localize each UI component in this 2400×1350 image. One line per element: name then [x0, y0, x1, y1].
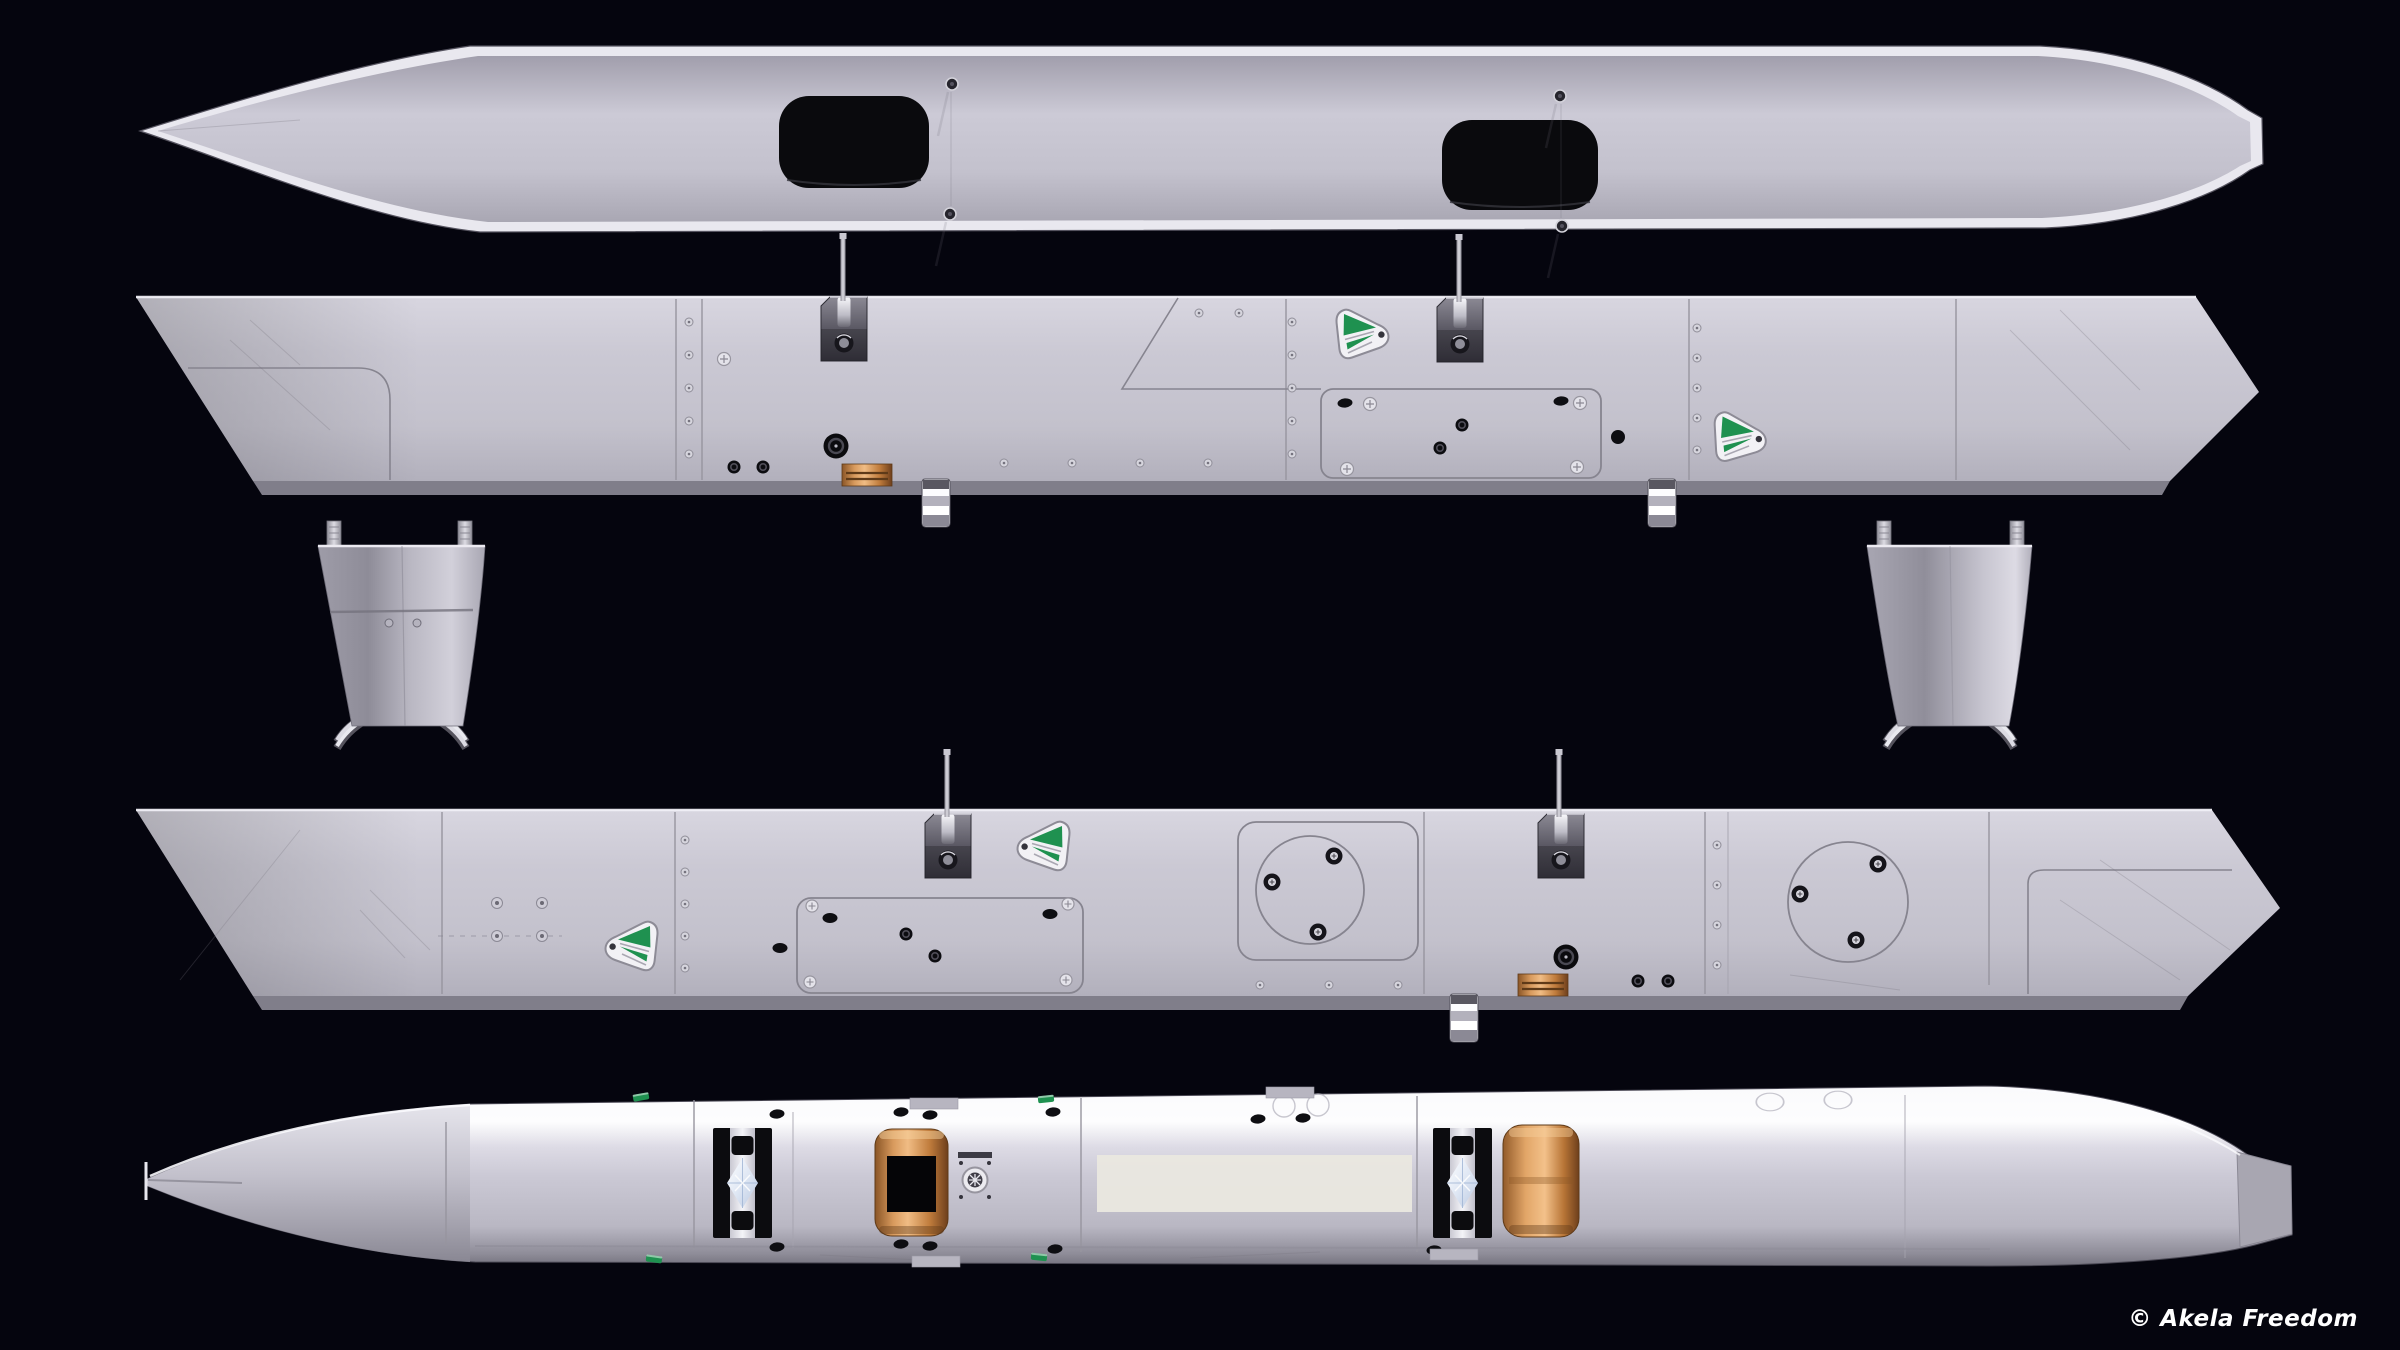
grommet-sm: [1632, 975, 1645, 988]
rivet: [681, 836, 689, 844]
cross-screw: [718, 353, 731, 366]
cross-screw: [1364, 398, 1377, 411]
cross-screw: [1574, 397, 1587, 410]
brass-roller-plain: [1503, 1125, 1579, 1237]
brass-plate: [842, 464, 892, 486]
gray-tab: [910, 1098, 958, 1109]
cross-screw: [1341, 463, 1354, 476]
side-view-a: [136, 297, 2259, 495]
green-mini: [633, 1092, 650, 1102]
rivet: [1256, 981, 1264, 989]
pin-rod: [1456, 234, 1463, 302]
screw-washer: [492, 931, 503, 942]
rivet: [1325, 981, 1333, 989]
rivet: [1693, 446, 1701, 454]
gray-tab: [1266, 1087, 1314, 1098]
rivet: [681, 868, 689, 876]
rivet: [681, 964, 689, 972]
brass-roller-window: [875, 1129, 948, 1236]
screw-washer: [537, 931, 548, 942]
bracket-clip: [1437, 298, 1483, 362]
side-a-bottom-band: [253, 481, 2170, 495]
ring-screw: [1326, 848, 1343, 865]
instances-layer: [492, 78, 1887, 1267]
rivet: [1693, 324, 1701, 332]
pin-rod: [944, 749, 951, 817]
drain-plug: [1648, 479, 1676, 527]
side-b-bottom-band: [253, 996, 2188, 1010]
bottom-recess: [1097, 1155, 1412, 1212]
rivet: [685, 450, 693, 458]
grommet-sm: [1434, 442, 1447, 455]
black-dot: [1611, 430, 1625, 444]
stern-facet: [2237, 1152, 2292, 1247]
rivet: [1288, 318, 1296, 326]
rivet: [1288, 351, 1296, 359]
side-view-b: [136, 810, 2280, 1010]
watermark: © Akela Freedom: [2128, 1306, 2358, 1332]
ring-screw: [1870, 856, 1887, 873]
ring-screw: [1264, 874, 1281, 891]
rivet: [1713, 961, 1721, 969]
cross-screw: [1571, 461, 1584, 474]
rivet: [1204, 459, 1212, 467]
pin-rod: [1556, 749, 1563, 817]
pin-rod: [840, 233, 847, 301]
rivet: [685, 384, 693, 392]
rivet: [1693, 414, 1701, 422]
rivet: [1693, 354, 1701, 362]
top-view: [140, 46, 2263, 232]
rivet: [1068, 459, 1076, 467]
rivet: [1000, 459, 1008, 467]
roller-track: [713, 1128, 772, 1238]
rivet: [681, 900, 689, 908]
rivet: [1713, 881, 1721, 889]
rivet: [1394, 981, 1402, 989]
bracket-clip: [1538, 814, 1584, 878]
pylon-right-pin-b: [2010, 521, 2024, 547]
gray-tab: [912, 1256, 960, 1267]
deck-hatch-front: [779, 96, 929, 188]
rivet: [1288, 384, 1296, 392]
rivet: [685, 318, 693, 326]
grommet-sm: [728, 461, 741, 474]
rivet: [1713, 841, 1721, 849]
pylon-right-body: [1867, 546, 2032, 726]
roller-track: [1433, 1128, 1492, 1238]
drain-plug: [1450, 994, 1478, 1042]
brass-plate: [1518, 974, 1568, 996]
pylon-right-pin-a: [1877, 521, 1891, 547]
rivet: [1713, 921, 1721, 929]
pylon-right: [1867, 521, 2032, 748]
bracket-clip: [925, 814, 971, 878]
grommet-lg: [1554, 945, 1579, 970]
bow-shade: [145, 1104, 470, 1262]
ring-screw: [1310, 924, 1327, 941]
rivet: [1235, 309, 1243, 317]
bracket-clip: [821, 297, 867, 361]
ring-screw: [1848, 932, 1865, 949]
pylon-left-pin-a: [327, 521, 341, 547]
rivet: [685, 417, 693, 425]
grommet-sm: [757, 461, 770, 474]
rivet: [681, 932, 689, 940]
screw-washer: [537, 898, 548, 909]
bottom-view: [145, 1086, 2292, 1266]
gray-tab: [1430, 1249, 1478, 1260]
rivet: [685, 351, 693, 359]
grommet-sm: [1456, 419, 1469, 432]
ring-screw: [1792, 886, 1809, 903]
drain-plug: [922, 479, 950, 527]
top-view-face: [158, 56, 2251, 222]
rivet: [1195, 309, 1203, 317]
screw-washer: [492, 898, 503, 909]
rivet: [1288, 450, 1296, 458]
rivet: [1288, 417, 1296, 425]
render-scene: [0, 0, 2400, 1350]
deck-hatch-rear: [1442, 120, 1598, 210]
rivet: [1136, 459, 1144, 467]
side-b-body: [136, 810, 2280, 996]
rivet: [1693, 384, 1701, 392]
render-canvas: { "image": { "width": 2400, "height": 13…: [0, 0, 2400, 1350]
grommet-sm: [1662, 975, 1675, 988]
pylon-left: [318, 521, 485, 748]
pylon-left-body: [318, 546, 485, 726]
pylon-left-pin-b: [458, 521, 472, 547]
grommet-lg: [824, 434, 849, 459]
